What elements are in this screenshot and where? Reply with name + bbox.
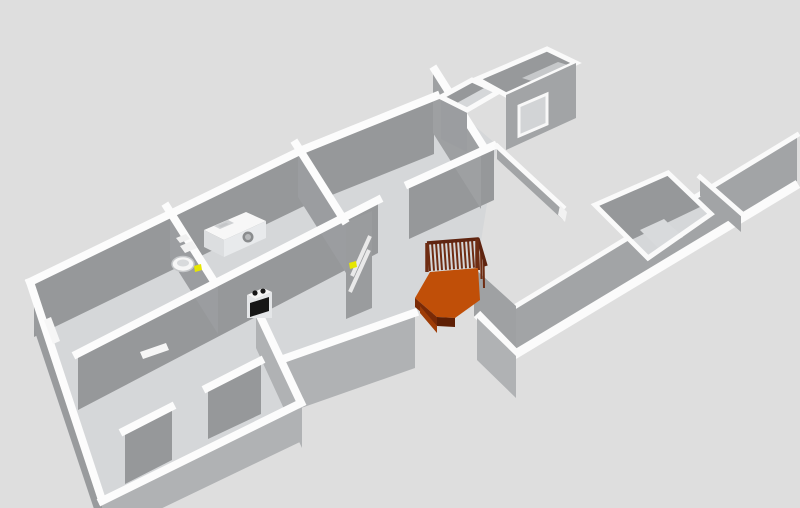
floorplan-render: OC OTTHON CENTRUM: [0, 0, 800, 508]
stair-front-face-right: [437, 317, 455, 327]
washing-machine-door-glass: [245, 234, 251, 240]
stove-burner-2: [260, 288, 265, 293]
floorplan-canvas: OC OTTHON CENTRUM: [0, 0, 800, 508]
stove-burner-1: [252, 290, 257, 295]
toilet-seat: [177, 260, 189, 267]
